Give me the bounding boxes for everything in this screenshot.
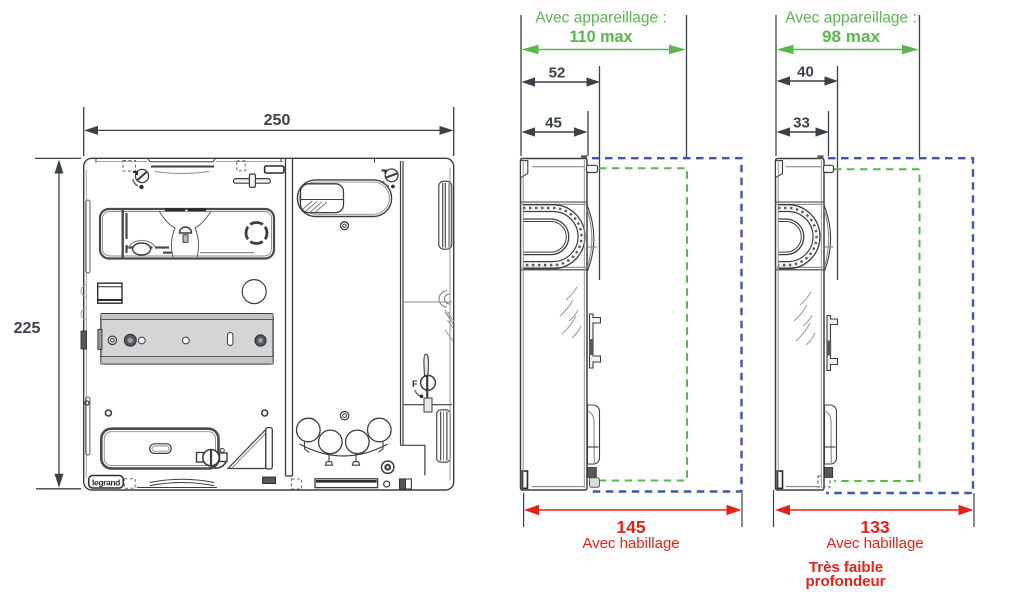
svg-text:98 max: 98 max bbox=[822, 27, 881, 46]
svg-text:33: 33 bbox=[793, 115, 810, 132]
svg-text:Avec appareillage :: Avec appareillage : bbox=[785, 10, 917, 27]
svg-text:Avec habillage: Avec habillage bbox=[582, 535, 679, 552]
svg-text:52: 52 bbox=[549, 65, 566, 82]
svg-text:250: 250 bbox=[264, 112, 291, 129]
svg-text:110 max: 110 max bbox=[570, 27, 634, 46]
svg-text:F: F bbox=[412, 379, 418, 389]
svg-text:Avec habillage: Avec habillage bbox=[826, 535, 923, 552]
svg-text:Avec appareillage :: Avec appareillage : bbox=[535, 10, 667, 27]
svg-text:legrand: legrand bbox=[92, 477, 120, 487]
svg-text:133: 133 bbox=[860, 517, 889, 537]
svg-text:40: 40 bbox=[797, 64, 814, 81]
svg-text:profondeur: profondeur bbox=[806, 573, 886, 590]
svg-text:45: 45 bbox=[545, 115, 562, 132]
svg-text:145: 145 bbox=[616, 517, 645, 537]
svg-text:225: 225 bbox=[14, 320, 41, 337]
